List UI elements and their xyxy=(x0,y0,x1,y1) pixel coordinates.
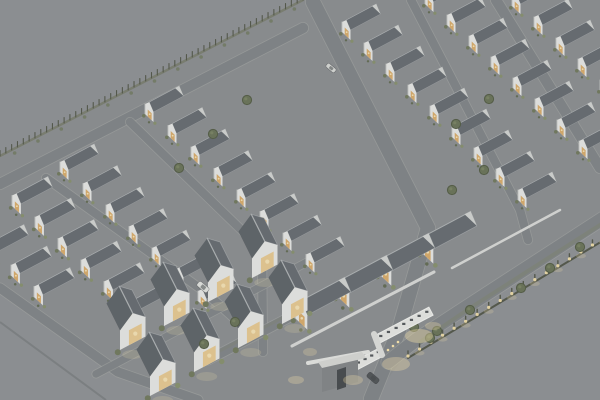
haze-overlay xyxy=(0,0,600,400)
architectural-render-viewport xyxy=(0,0,600,400)
housing-estate-render xyxy=(0,0,600,400)
